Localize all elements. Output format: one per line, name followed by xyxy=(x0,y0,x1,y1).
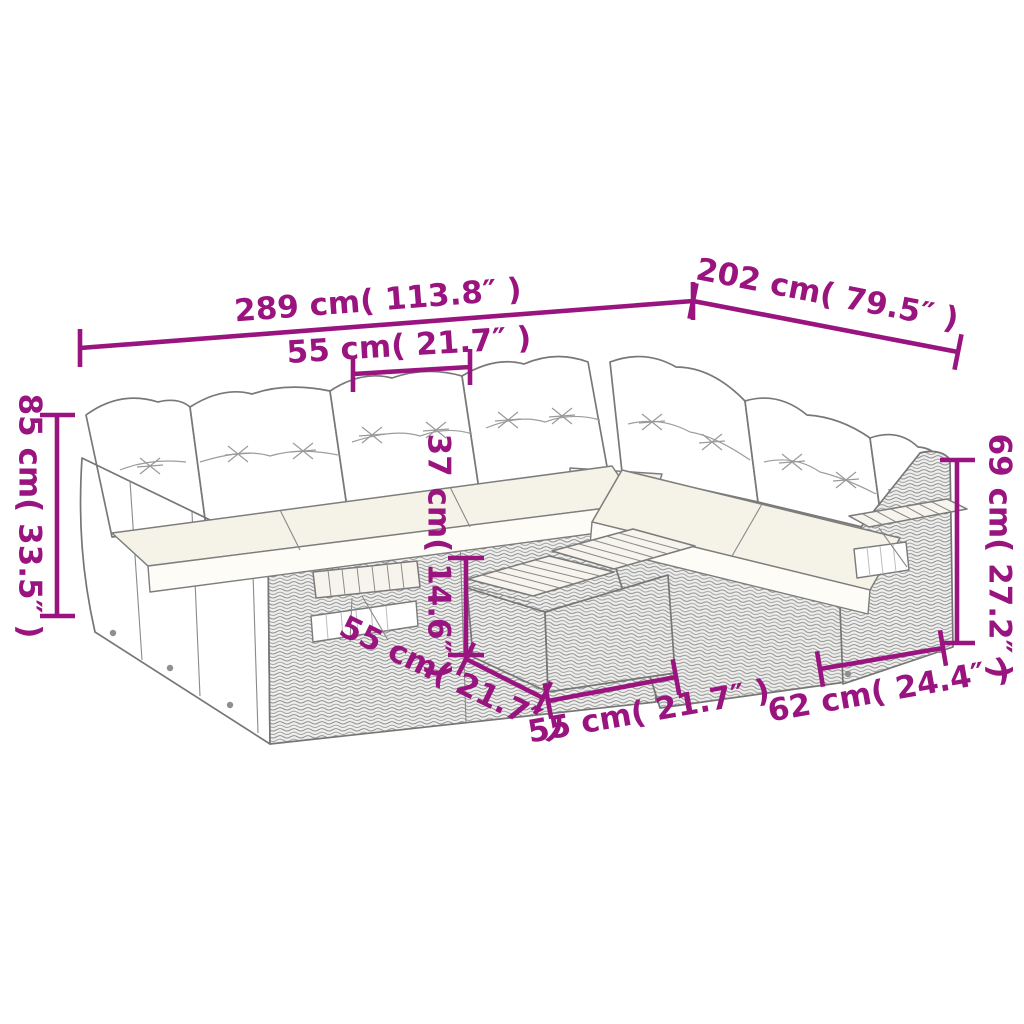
dim-total-depth: 202 cm( 79.5″ ) xyxy=(690,251,962,369)
screenshot-canvas: 289 cm( 113.8″ ) 202 cm( 79.5″ ) 55 cm( … xyxy=(0,0,1024,1024)
dim-arm-height-label: 69 cm( 27.2″ ) xyxy=(982,434,1018,679)
dim-overall-height-label: 85 cm( 33.5″ ) xyxy=(12,394,48,639)
dimension-diagram: 289 cm( 113.8″ ) 202 cm( 79.5″ ) 55 cm( … xyxy=(0,0,1024,1024)
dim-overall-height: 85 cm( 33.5″ ) xyxy=(12,394,76,639)
dim-total-width-label: 289 cm( 113.8″ ) xyxy=(233,272,523,330)
dim-table-height-label: 37 cm( 14.6″ ) xyxy=(421,434,457,679)
